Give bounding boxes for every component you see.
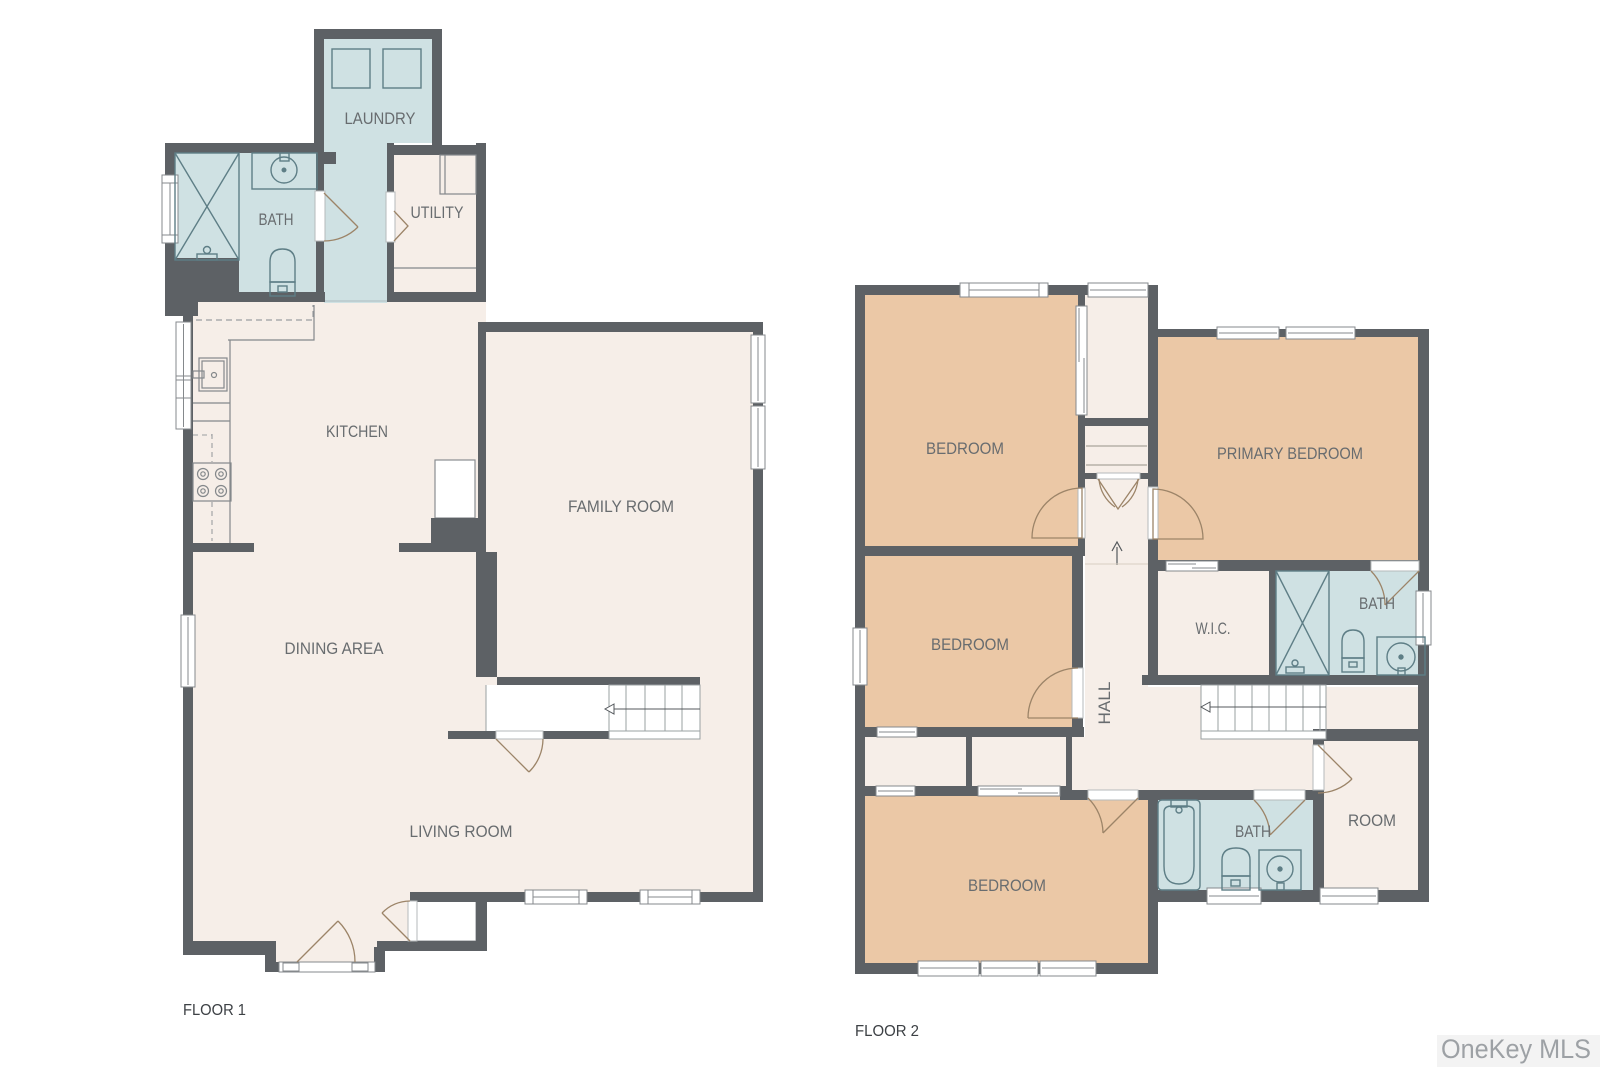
svg-text:BATH: BATH: [259, 210, 294, 229]
svg-text:BATH: BATH: [1359, 594, 1395, 613]
svg-text:UTILITY: UTILITY: [411, 203, 464, 222]
svg-text:HALL: HALL: [1095, 682, 1114, 725]
svg-text:FAMILY ROOM: FAMILY ROOM: [568, 497, 674, 516]
svg-text:DINING AREA: DINING AREA: [285, 639, 385, 658]
svg-text:KITCHEN: KITCHEN: [326, 422, 388, 441]
svg-text:FLOOR 1: FLOOR 1: [183, 1002, 246, 1019]
svg-text:BATH: BATH: [1235, 822, 1271, 841]
svg-text:OneKey MLS: OneKey MLS: [1441, 1034, 1591, 1064]
svg-text:W.I.C.: W.I.C.: [1196, 619, 1231, 638]
svg-text:PRIMARY BEDROOM: PRIMARY BEDROOM: [1217, 444, 1363, 463]
svg-text:FLOOR 2: FLOOR 2: [855, 1023, 919, 1040]
svg-text:LAUNDRY: LAUNDRY: [345, 109, 416, 128]
svg-text:LIVING ROOM: LIVING ROOM: [410, 822, 513, 841]
svg-text:BEDROOM: BEDROOM: [931, 635, 1009, 654]
svg-text:BEDROOM: BEDROOM: [926, 439, 1004, 458]
svg-text:ROOM: ROOM: [1348, 811, 1396, 830]
svg-text:BEDROOM: BEDROOM: [968, 876, 1046, 895]
